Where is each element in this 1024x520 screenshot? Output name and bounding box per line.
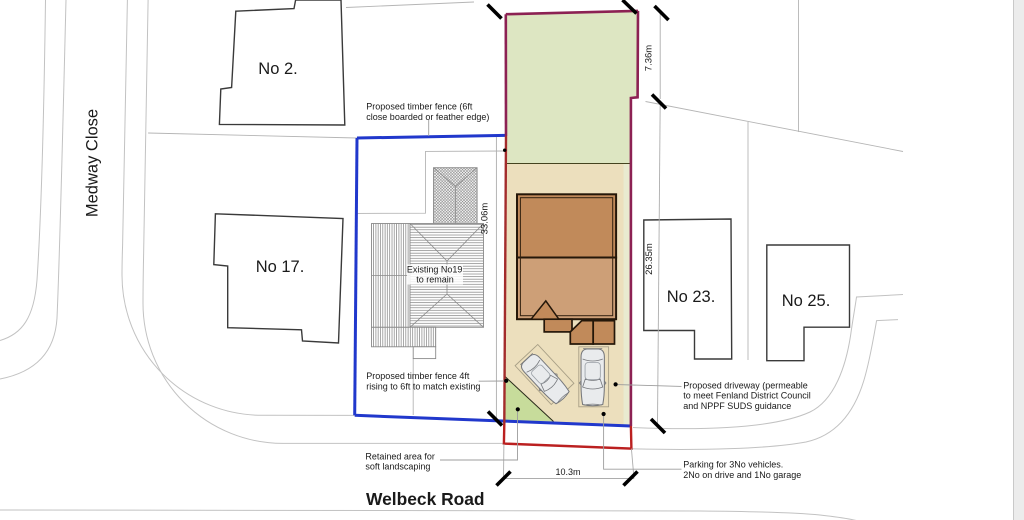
svg-text:to meet Fenland District Counc: to meet Fenland District Council [683,391,811,401]
svg-text:No 2.: No 2. [258,60,297,78]
svg-text:No 23.: No 23. [667,288,716,306]
svg-text:Proposed timber fence 4ft: Proposed timber fence 4ft [366,371,470,381]
svg-text:Parking for 3No vehicles.: Parking for 3No vehicles. [683,460,783,470]
svg-text:33.06m: 33.06m [480,203,491,235]
svg-text:soft landscaping: soft landscaping [365,462,430,472]
svg-text:No 17.: No 17. [256,258,305,276]
svg-text:Proposed driveway (permeable: Proposed driveway (permeable [683,380,808,390]
svg-text:2No on drive and 1No garage: 2No on drive and 1No garage [683,470,801,480]
svg-text:close boarded or feather edge): close boarded or feather edge) [366,112,489,122]
svg-text:Retained area for: Retained area for [365,452,435,462]
svg-text:No 25.: No 25. [782,292,831,310]
svg-text:26.35m: 26.35m [644,243,655,275]
svg-text:Medway Close: Medway Close [84,109,102,217]
svg-text:Existing No19: Existing No19 [407,265,463,275]
svg-text:Welbeck Road: Welbeck Road [366,489,485,509]
svg-text:10.3m: 10.3m [555,467,580,477]
svg-text:7.36m: 7.36m [644,45,655,71]
svg-text:Proposed timber fence (6ft: Proposed timber fence (6ft [366,102,473,112]
svg-text:to remain: to remain [416,275,454,285]
svg-text:and NPPF SUDS guidance: and NPPF SUDS guidance [683,401,791,411]
svg-text:rising to 6ft to match existin: rising to 6ft to match existing [366,381,480,391]
